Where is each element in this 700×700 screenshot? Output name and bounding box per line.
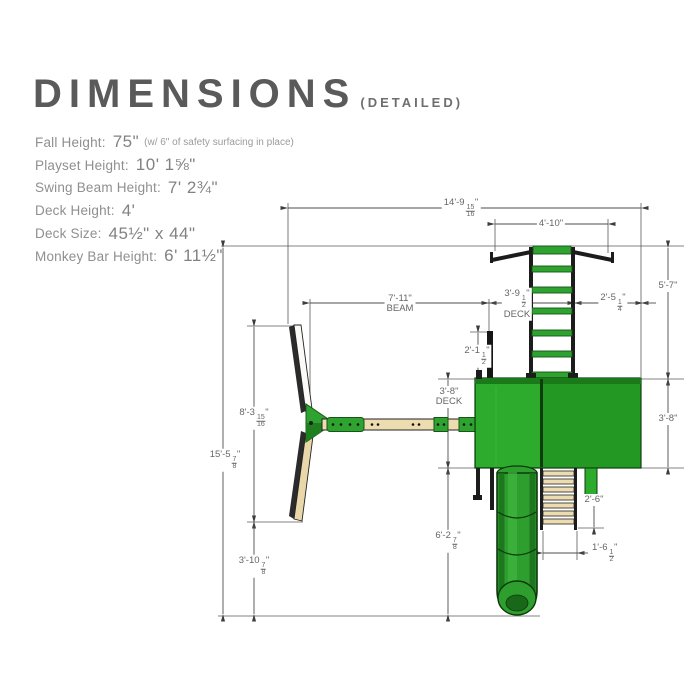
monkey-bar-arm-left [492, 252, 531, 260]
monkey-bar-rungs [532, 266, 572, 378]
dim-aframe-span: 8'-31516" [237, 407, 270, 430]
beam-bracket [434, 418, 448, 432]
deck [475, 370, 641, 468]
swing-beam [322, 418, 476, 432]
access-ladder [540, 468, 577, 530]
dim-deck-to-edge: 6'-278" [433, 530, 462, 553]
dim-deck-depth-left: 3'-8" DECK [434, 386, 464, 408]
ladder-rungs [543, 471, 574, 524]
dim-deck-width-top: 3'-912" DECK [502, 288, 532, 321]
playset-dimensions-page: DIMENSIONS(DETAILED) Fall Height: 75" (w… [0, 0, 700, 700]
dim-beam-length: 7'-11" BEAM [385, 293, 416, 315]
dim-leg-to-edge: 3'-1078" [237, 555, 272, 578]
dim-overall-width: 14'-91516" [442, 197, 481, 220]
dim-monkey-bar-to-edge: 5'-7" [657, 280, 680, 292]
dim-ladder-width: 1'-612" [590, 542, 619, 565]
playset-plan-drawing [0, 0, 700, 700]
dim-ladder-depth: 2'-6" [583, 494, 606, 506]
dim-total-depth: 15'-578" [208, 449, 243, 472]
dim-edge-offset-right: 2'-514" [598, 292, 627, 315]
beam-bracket [459, 418, 476, 432]
monkey-bar-arm-right [573, 252, 612, 260]
dim-post-offset: 2'-112" [462, 345, 491, 368]
dim-monkey-bar-width: 4'-10" [537, 218, 565, 230]
tube-slide [497, 466, 537, 615]
dim-deck-depth-right: 3'-8" [657, 413, 680, 425]
support-posts [473, 468, 494, 510]
